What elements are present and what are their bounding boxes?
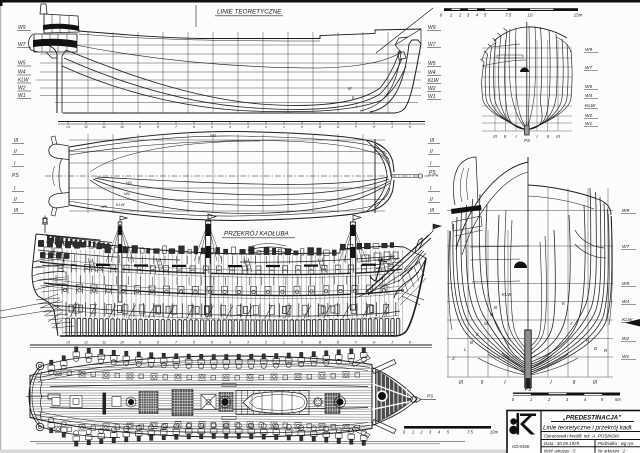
svg-text:W5: W5 bbox=[428, 61, 436, 67]
svg-text:II: II bbox=[14, 197, 17, 203]
svg-text:0: 0 bbox=[512, 397, 515, 402]
svg-text:4: 4 bbox=[229, 341, 231, 345]
svg-text:W1: W1 bbox=[18, 93, 26, 99]
svg-text:0: 0 bbox=[440, 13, 443, 18]
svg-text:5: 5 bbox=[601, 397, 604, 402]
svg-text:15m: 15m bbox=[574, 13, 583, 18]
svg-text:4: 4 bbox=[584, 397, 587, 402]
svg-text:8: 8 bbox=[157, 125, 159, 129]
svg-text:7: 7 bbox=[175, 341, 178, 345]
svg-text:10: 10 bbox=[120, 341, 124, 345]
svg-text:4: 4 bbox=[229, 125, 231, 129]
svg-text:2: 2 bbox=[264, 341, 267, 345]
svg-text:M: M bbox=[484, 321, 488, 326]
svg-text:J: J bbox=[569, 321, 573, 326]
svg-text:3: 3 bbox=[247, 341, 249, 345]
svg-text:III: III bbox=[430, 208, 435, 214]
svg-text:II: II bbox=[430, 149, 433, 155]
svg-text:III: III bbox=[430, 138, 435, 144]
svg-text:H: H bbox=[373, 125, 376, 129]
svg-text:„PREDESTINACJA”: „PREDESTINACJA” bbox=[562, 415, 622, 422]
svg-text:II: II bbox=[573, 380, 576, 386]
svg-text:7.5: 7.5 bbox=[467, 430, 473, 435]
svg-text:I: I bbox=[14, 186, 16, 192]
svg-text:I: I bbox=[536, 134, 538, 139]
svg-text:B: B bbox=[319, 341, 322, 345]
svg-text:3: 3 bbox=[429, 430, 432, 435]
svg-text:PS: PS bbox=[525, 387, 532, 393]
svg-text:W2: W2 bbox=[428, 86, 436, 92]
svg-text:I: I bbox=[504, 380, 506, 386]
svg-text:KLW: KLW bbox=[502, 292, 512, 297]
svg-text:9: 9 bbox=[139, 341, 141, 345]
svg-text:W9: W9 bbox=[18, 25, 26, 31]
svg-text:2: 2 bbox=[419, 430, 423, 435]
svg-text:K: K bbox=[409, 341, 412, 345]
svg-text:I: I bbox=[430, 161, 432, 167]
svg-text:Nr arkusza : 2: Nr arkusza : 2 bbox=[598, 449, 626, 453]
svg-text:III: III bbox=[459, 380, 464, 386]
svg-text:5: 5 bbox=[211, 125, 213, 129]
svg-text:III: III bbox=[14, 138, 19, 144]
svg-text:6: 6 bbox=[193, 341, 195, 345]
svg-text:10: 10 bbox=[528, 13, 533, 18]
svg-text:H: H bbox=[373, 341, 376, 345]
svg-text:II: II bbox=[430, 197, 433, 203]
svg-text:Ilość arkuszy : 5: Ilość arkuszy : 5 bbox=[544, 449, 576, 453]
svg-text:3: 3 bbox=[247, 125, 249, 129]
svg-text:II: II bbox=[547, 134, 550, 139]
svg-text:III: III bbox=[593, 380, 598, 386]
svg-text:W2: W2 bbox=[18, 86, 26, 92]
svg-text:2: 2 bbox=[264, 125, 267, 129]
svg-text:Podziałka : wg rys.: Podziałka : wg rys. bbox=[598, 441, 635, 446]
svg-text:W1: W1 bbox=[428, 94, 436, 100]
svg-text:Opracował i kreślił: inż. A.: Opracował i kreślił: inż. A. POSIŃSKI bbox=[544, 433, 620, 439]
svg-text:W7: W7 bbox=[428, 42, 436, 48]
svg-text:4: 4 bbox=[476, 13, 479, 18]
svg-text:0: 0 bbox=[403, 430, 406, 435]
svg-text:II: II bbox=[481, 380, 484, 386]
svg-text:12: 12 bbox=[84, 125, 88, 129]
svg-text:I: I bbox=[430, 186, 432, 192]
svg-text:F: F bbox=[355, 125, 358, 129]
svg-text:5: 5 bbox=[447, 430, 450, 435]
svg-text:W3: W3 bbox=[210, 133, 217, 138]
svg-text:11: 11 bbox=[102, 125, 106, 129]
svg-text:13: 13 bbox=[66, 125, 70, 129]
svg-text:2: 2 bbox=[547, 397, 551, 402]
svg-text:13: 13 bbox=[66, 341, 70, 345]
svg-text:7.5: 7.5 bbox=[505, 13, 512, 18]
svg-text:PRZEKRÓJ KADŁUBA: PRZEKRÓJ KADŁUBA bbox=[224, 229, 289, 238]
svg-text:K: K bbox=[409, 125, 412, 129]
svg-text:III: III bbox=[556, 134, 560, 139]
svg-text:KLW: KLW bbox=[428, 78, 440, 84]
svg-text:1: 1 bbox=[450, 13, 453, 18]
svg-text:PS: PS bbox=[427, 394, 433, 399]
svg-text:0: 0 bbox=[301, 125, 303, 129]
svg-text:8: 8 bbox=[157, 341, 159, 345]
svg-text:D: D bbox=[337, 125, 340, 129]
svg-text:W5: W5 bbox=[18, 61, 26, 67]
svg-text:3: 3 bbox=[566, 397, 569, 402]
svg-text:III: III bbox=[14, 208, 19, 214]
svg-text:W5: W5 bbox=[101, 204, 108, 209]
svg-text:L: L bbox=[464, 347, 467, 352]
svg-text:1: 1 bbox=[283, 341, 285, 345]
svg-text:III: III bbox=[493, 134, 497, 139]
svg-text:7: 7 bbox=[175, 125, 178, 129]
svg-text:5: 5 bbox=[211, 341, 213, 345]
svg-text:W4: W4 bbox=[428, 70, 436, 76]
svg-text:1: 1 bbox=[283, 125, 285, 129]
svg-text:B: B bbox=[319, 125, 322, 129]
svg-text:12: 12 bbox=[84, 341, 88, 345]
svg-text:PS: PS bbox=[524, 138, 530, 143]
svg-text:10m: 10m bbox=[490, 430, 499, 435]
svg-text:I: I bbox=[515, 134, 517, 139]
svg-text:Linie teoretyczne i przekrój k: Linie teoretyczne i przekrój kadł. bbox=[543, 425, 633, 432]
svg-text:Z: Z bbox=[451, 356, 455, 361]
svg-text:4: 4 bbox=[438, 430, 441, 435]
svg-text:B: B bbox=[470, 340, 473, 345]
svg-text:I: I bbox=[550, 380, 552, 386]
svg-text:W7: W7 bbox=[18, 42, 26, 48]
svg-text:10: 10 bbox=[120, 125, 124, 129]
svg-text:0: 0 bbox=[301, 341, 303, 345]
svg-text:3: 3 bbox=[467, 13, 470, 18]
svg-text:W4: W4 bbox=[18, 70, 26, 76]
svg-text:F: F bbox=[355, 341, 358, 345]
svg-text:E: E bbox=[476, 332, 479, 337]
svg-text:W9: W9 bbox=[428, 25, 436, 31]
svg-text:11: 11 bbox=[102, 341, 106, 345]
svg-text:1: 1 bbox=[530, 397, 532, 402]
svg-text:B: B bbox=[494, 305, 497, 310]
svg-text:GDAŃSK: GDAŃSK bbox=[512, 444, 530, 449]
svg-text:R: R bbox=[604, 348, 608, 353]
svg-text:II: II bbox=[504, 134, 507, 139]
svg-text:Data : 30.05.1979: Data : 30.05.1979 bbox=[544, 441, 579, 446]
svg-text:5: 5 bbox=[484, 13, 487, 18]
svg-text:KLW: KLW bbox=[18, 78, 30, 84]
svg-text:W2: W2 bbox=[124, 191, 131, 196]
svg-text:J: J bbox=[390, 341, 393, 345]
svg-text:6m: 6m bbox=[615, 397, 621, 402]
svg-text:III: III bbox=[348, 86, 352, 91]
svg-text:6: 6 bbox=[193, 125, 195, 129]
svg-text:PS: PS bbox=[12, 173, 19, 179]
svg-text:II: II bbox=[14, 149, 17, 155]
svg-text:D: D bbox=[594, 346, 598, 351]
svg-text:G: G bbox=[490, 312, 494, 317]
svg-text:J: J bbox=[390, 125, 393, 129]
svg-text:I: I bbox=[14, 161, 16, 167]
svg-text:1: 1 bbox=[412, 430, 414, 435]
svg-text:W1: W1 bbox=[126, 180, 132, 185]
svg-text:LINIE TEORETYCZNE: LINIE TEORETYCZNE bbox=[217, 9, 282, 16]
svg-text:D: D bbox=[337, 341, 340, 345]
svg-text:2: 2 bbox=[458, 13, 462, 18]
svg-text:9: 9 bbox=[139, 125, 141, 129]
svg-text:KLW: KLW bbox=[116, 202, 126, 207]
